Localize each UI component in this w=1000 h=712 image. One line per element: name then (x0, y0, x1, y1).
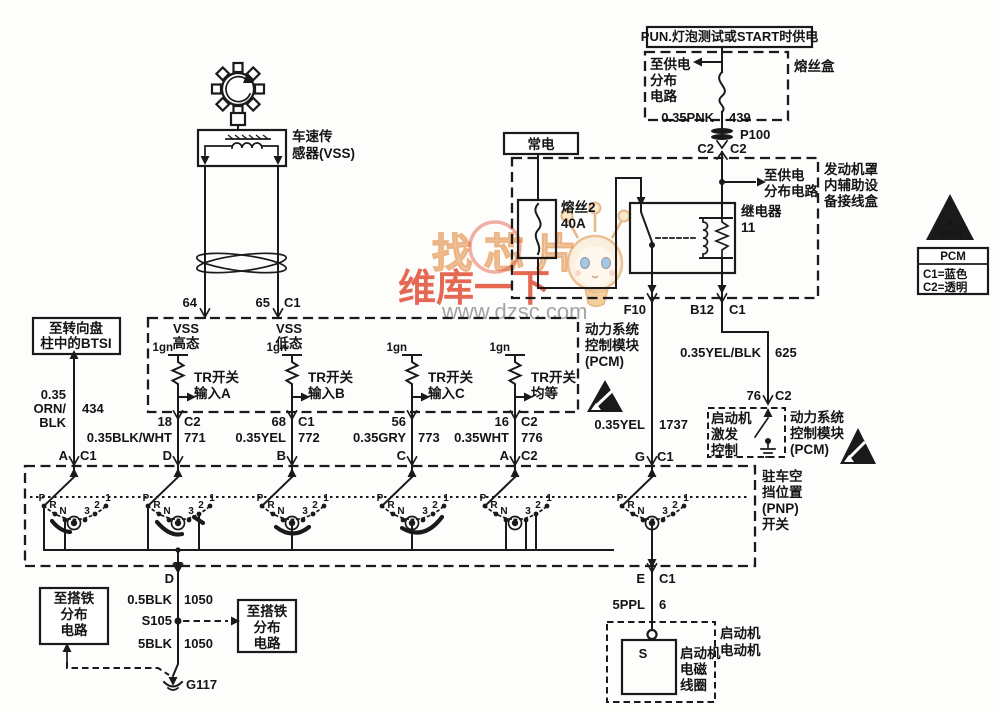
watermark: 找芯片 维库一下 www.dzsc.com (398, 203, 630, 325)
pin-56: 56 (392, 414, 406, 429)
svg-text:C2: C2 (775, 388, 792, 403)
btsi-branch: 至转向盘 柱中的BTSI 0.35 ORN/ BLK 434 A C1 (33, 318, 120, 471)
legend: II OBDII PCM C1=蓝色 C2=透明 (918, 194, 988, 294)
arrowhead (693, 58, 702, 67)
pnp-position-label: 1 (105, 493, 111, 504)
pnp-position-label: 3 (302, 506, 308, 517)
wiring-diagram: 找芯片 维库一下 www.dzsc.com (0, 0, 1000, 712)
pnp-position-label: R (49, 500, 57, 511)
pin-68: 68 (272, 414, 286, 429)
pnp-position-label: N (277, 506, 284, 517)
svg-text:高态: 高态 (173, 335, 200, 351)
connector-p100-symbol (711, 128, 733, 134)
arrowhead (764, 408, 773, 417)
svg-text:控制模块: 控制模块 (585, 337, 639, 353)
svg-text:电磁: 电磁 (680, 661, 708, 677)
svg-text:11: 11 (741, 220, 756, 235)
svg-text:TR开关: TR开关 (308, 369, 353, 385)
pin-16: 16 (495, 414, 509, 429)
svg-text:PCM: PCM (940, 251, 966, 263)
pnp-position-label: 1 (209, 493, 215, 504)
ground-g117-label: G117 (186, 677, 217, 692)
svg-text:ORN/: ORN/ (34, 401, 67, 416)
svg-text:0.35BLK/WHT: 0.35BLK/WHT (87, 430, 172, 445)
pnp-position-label: N (59, 506, 66, 517)
svg-text:TR开关: TR开关 (428, 369, 473, 385)
svg-text:0.35YEL/BLK: 0.35YEL/BLK (680, 345, 762, 360)
arrowhead (637, 197, 646, 206)
svg-text:感器(VSS): 感器(VSS) (292, 145, 355, 161)
pin-65: 65 (256, 295, 270, 310)
svg-text:C1: C1 (284, 295, 301, 310)
svg-text:激发: 激发 (711, 426, 739, 442)
svg-text:输入B: 输入B (308, 385, 345, 401)
pnp-position-label: 2 (198, 500, 204, 511)
pnp-position-label: R (387, 500, 395, 511)
pin-f10: F10 (624, 302, 646, 317)
twisted-pair-symbol (196, 250, 287, 277)
vss-sensor: 车速传 感器(VSS) 64 65 C1 (183, 63, 355, 318)
svg-text:0.35YEL: 0.35YEL (594, 417, 645, 432)
svg-text:输入A: 输入A (194, 385, 231, 401)
fuse-box-label: 熔丝盒 (794, 58, 835, 74)
pnp-position-label: P (480, 493, 487, 504)
hot-in-run-label: PUN.灯泡测试或START时供电 (641, 29, 818, 44)
starter-motor-label: 启动机 (720, 625, 761, 641)
esd-symbol (587, 380, 623, 412)
pnp-lever (262, 477, 292, 506)
svg-text:熔丝2: 熔丝2 (561, 199, 596, 215)
svg-text:S105: S105 (142, 613, 172, 628)
relay-label: 继电器 (741, 203, 782, 219)
svg-text:至供电: 至供电 (650, 56, 691, 72)
relay-box (630, 203, 735, 273)
svg-text:C2: C2 (521, 448, 538, 463)
pnp-lever (44, 477, 74, 506)
svg-text:5BLK: 5BLK (138, 636, 173, 651)
arrowhead (169, 677, 178, 686)
pnp-position-label: 2 (312, 500, 318, 511)
fuse-symbol (719, 72, 725, 112)
pnp-position-label: 3 (84, 506, 90, 517)
pcm-starter-trigger: 启动机 激发 控制 动力系统 控制模块 (PCM) (708, 408, 876, 464)
svg-text:II: II (947, 217, 953, 229)
pnp-wafer: PRN321 (377, 468, 450, 550)
pnp-position-label: N (637, 506, 644, 517)
svg-text:773: 773 (418, 430, 440, 445)
svg-text:C2: C2 (184, 414, 201, 429)
svg-text:0.5BLK: 0.5BLK (127, 592, 172, 607)
svg-text:均等: 均等 (531, 385, 559, 401)
svg-text:电路: 电路 (61, 622, 88, 638)
svg-text:(PCM): (PCM) (790, 442, 829, 457)
pnp-position-label: 3 (525, 506, 531, 517)
svg-text:内辅助设: 内辅助设 (824, 177, 878, 193)
pnp-position-label: P (39, 493, 46, 504)
svg-text:启动机: 启动机 (711, 410, 752, 426)
pin-d-out: D (165, 571, 174, 586)
esd-symbol (840, 428, 876, 464)
svg-text:434: 434 (82, 401, 104, 416)
pnp-switch: 驻车空 挡位置 (PNP) 开关 PRN321PRN321PRN321PRN32… (25, 466, 803, 566)
svg-text:C2: C2 (730, 141, 747, 156)
relay-circuit: 继电器 11 F10 B12 C1 0.35YEL 1737 G C1 0.35… (594, 203, 796, 471)
pin-e: E (636, 571, 645, 586)
svg-text:TR开关: TR开关 (194, 369, 239, 385)
pcm-main: 动力系统 控制模块 (PCM) VSS 高态 VSS 低态 1gn 1gn 1g… (87, 318, 640, 471)
ign-label: 1gn (387, 342, 407, 354)
solenoid-s-label: S (639, 646, 648, 661)
vss-label: 车速传 (292, 128, 333, 144)
svg-text:至搭铁: 至搭铁 (247, 603, 288, 619)
relay-resistor (716, 218, 728, 258)
pnp-wafer: PRN321 (617, 468, 690, 530)
pnp-position-label: 2 (94, 500, 100, 511)
svg-text:挡位置: 挡位置 (762, 484, 803, 500)
solenoid-box (622, 640, 676, 694)
arrowhead (648, 285, 657, 294)
pnp-position-label: P (617, 493, 624, 504)
pin-a-c1: A (59, 448, 69, 463)
pnp-position-label: 3 (422, 506, 428, 517)
svg-text:40A: 40A (561, 216, 586, 231)
pnp-position-label: R (490, 500, 498, 511)
svg-text:C2=透明: C2=透明 (923, 280, 967, 294)
svg-text:0.35GRY: 0.35GRY (353, 430, 406, 445)
svg-text:BLK: BLK (39, 415, 66, 430)
svg-text:439: 439 (729, 110, 751, 125)
svg-text:常电: 常电 (528, 136, 556, 152)
pnp-position-label: P (143, 493, 150, 504)
splice-s105 (175, 618, 182, 625)
pnp-lever (382, 477, 412, 506)
pnp-wafer: PRN321 (143, 468, 216, 550)
svg-text:C2: C2 (521, 414, 538, 429)
pnp-position-label: R (153, 500, 161, 511)
pnp-position-label: R (627, 500, 635, 511)
pnp-position-label: N (397, 506, 404, 517)
pnp-lever (148, 477, 178, 506)
pcm2-label: 动力系统 (790, 409, 844, 425)
pnp-lever (622, 477, 652, 506)
pin-18: 18 (158, 414, 172, 429)
svg-text:至转向盘: 至转向盘 (49, 320, 103, 336)
pnp-position-label: R (267, 500, 275, 511)
pin-d: D (163, 448, 172, 463)
svg-text:VSS: VSS (276, 321, 302, 336)
pcm-label: 动力系统 (585, 321, 639, 337)
pnp-position-label: 1 (443, 493, 449, 504)
pnp-wafer: PRN321 (480, 468, 553, 550)
solenoid-terminal (648, 630, 657, 639)
pin-b: B (277, 448, 286, 463)
pnp-position-label: 1 (323, 493, 329, 504)
pnp-label: 驻车空 (762, 468, 803, 484)
ign-label: 1gn (153, 342, 173, 354)
starter-circuit: E C1 5PPL 6 S 启动机 电磁 线圈 启动机 电动机 (607, 566, 761, 702)
pin-64: 64 (183, 295, 198, 310)
pnp-wafer: PRN321 (39, 468, 112, 550)
svg-text:VSS: VSS (173, 321, 199, 336)
svg-text:分布电路: 分布电路 (764, 183, 818, 199)
svg-text:0.35WHT: 0.35WHT (454, 430, 509, 445)
svg-text:备接线盒: 备接线盒 (823, 193, 878, 209)
svg-text:电路: 电路 (650, 88, 678, 104)
svg-text:C1: C1 (729, 302, 746, 317)
pnp-wiper-arc (194, 517, 203, 523)
pnp-position-label: P (257, 493, 264, 504)
svg-text:(PCM): (PCM) (585, 354, 624, 369)
svg-text:C2: C2 (697, 141, 714, 156)
svg-text:6: 6 (659, 597, 666, 612)
svg-text:分布: 分布 (61, 606, 88, 622)
arrowhead (718, 285, 727, 294)
svg-text:772: 772 (298, 430, 320, 445)
pnp-position-label: 1 (546, 493, 552, 504)
svg-text:至供电: 至供电 (764, 167, 805, 183)
pnp-lever (485, 477, 515, 506)
svg-text:C1: C1 (298, 414, 315, 429)
svg-text:电动机: 电动机 (720, 642, 761, 658)
svg-text:1050: 1050 (184, 636, 213, 651)
pnp-position-label: 1 (683, 493, 689, 504)
svg-text:1737: 1737 (659, 417, 688, 432)
svg-text:线圈: 线圈 (680, 677, 707, 693)
svg-text:输入C: 输入C (428, 385, 465, 401)
svg-text:625: 625 (775, 345, 797, 360)
pnp-position-label: 3 (662, 506, 668, 517)
svg-text:C1: C1 (659, 571, 676, 586)
ign-label: 1gn (490, 342, 510, 354)
pin-b12: B12 (690, 302, 714, 317)
svg-text:C1=蓝色: C1=蓝色 (923, 267, 968, 281)
trigger-contact (755, 418, 768, 437)
ign-label: 1gn (267, 342, 287, 354)
svg-text:至搭铁: 至搭铁 (54, 590, 95, 606)
svg-text:771: 771 (184, 430, 206, 445)
reluctor-gear-icon (212, 63, 264, 115)
pnp-wafer: PRN321 (257, 468, 330, 550)
watermark-site-text: www.dzsc.com (441, 299, 587, 324)
svg-text:电路: 电路 (254, 635, 281, 651)
pin-g: G (635, 449, 645, 464)
svg-text:0.35YEL: 0.35YEL (235, 430, 286, 445)
pnp-position-label: 2 (432, 500, 438, 511)
svg-text:控制模块: 控制模块 (790, 425, 844, 441)
svg-text:TR开关: TR开关 (531, 369, 576, 385)
pnp-position-label: P (377, 493, 384, 504)
connector-p100-label: P100 (740, 127, 770, 142)
svg-text:(PNP): (PNP) (762, 501, 799, 516)
svg-text:分布: 分布 (650, 72, 677, 88)
svg-text:5PPL: 5PPL (612, 597, 645, 612)
pnp-position-label: 2 (535, 500, 541, 511)
pin-c: C (397, 448, 407, 463)
pnp-position-label: 2 (672, 500, 678, 511)
svg-text:776: 776 (521, 430, 543, 445)
svg-text:开关: 开关 (762, 516, 790, 532)
svg-text:柱中的BTSI: 柱中的BTSI (40, 335, 111, 351)
svg-text:C1: C1 (657, 449, 674, 464)
pin-a: A (500, 448, 510, 463)
svg-text:控制: 控制 (711, 442, 738, 458)
pnp-position-label: N (500, 506, 507, 517)
pin-76: 76 (747, 388, 761, 403)
svg-text:0.35: 0.35 (41, 387, 66, 402)
ujb-label: 发动机罩 (823, 161, 878, 177)
svg-text:OBDII: OBDII (938, 229, 962, 239)
svg-text:启动机: 启动机 (680, 645, 721, 661)
svg-text:分布: 分布 (254, 619, 281, 635)
wire-b12-to-76 (722, 273, 768, 402)
svg-text:C1: C1 (80, 448, 97, 463)
pnp-position-label: N (163, 506, 170, 517)
svg-text:0.35PNK: 0.35PNK (661, 110, 714, 125)
ground-circuit: D 0.5BLK 1050 S105 5BLK 1050 至搭铁 分布 电路 至… (40, 566, 296, 692)
relay-contact (641, 203, 652, 242)
svg-text:1050: 1050 (184, 592, 213, 607)
